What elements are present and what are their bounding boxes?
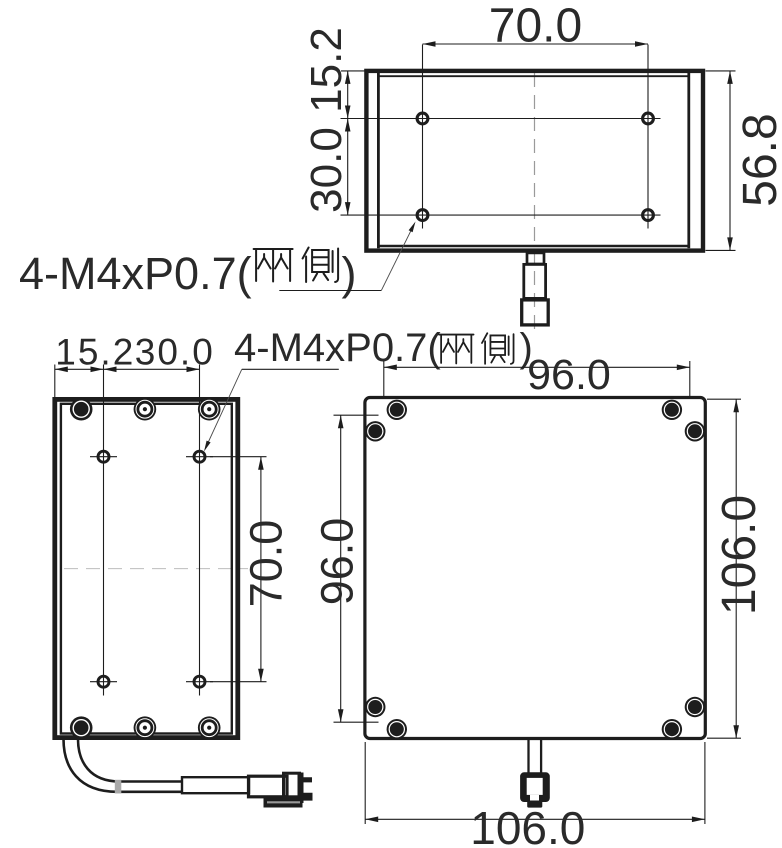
svg-text:4-M4xP0.7(: 4-M4xP0.7( bbox=[19, 248, 252, 299]
svg-text:96.0: 96.0 bbox=[312, 518, 363, 606]
svg-text:): ) bbox=[342, 248, 357, 299]
svg-text:106.0: 106.0 bbox=[470, 802, 585, 848]
svg-text:106.0: 106.0 bbox=[713, 495, 766, 615]
svg-text:96.0: 96.0 bbox=[527, 351, 611, 399]
svg-text:30.0: 30.0 bbox=[135, 331, 215, 372]
svg-text:70.0: 70.0 bbox=[489, 0, 582, 53]
svg-text:4-M4xP0.7(: 4-M4xP0.7( bbox=[234, 326, 441, 370]
svg-text:70.0: 70.0 bbox=[241, 520, 292, 608]
svg-text:15.2: 15.2 bbox=[55, 331, 135, 372]
svg-text:56.8: 56.8 bbox=[734, 113, 782, 206]
svg-text:15.2: 15.2 bbox=[302, 27, 351, 113]
svg-text:30.0: 30.0 bbox=[302, 127, 351, 213]
